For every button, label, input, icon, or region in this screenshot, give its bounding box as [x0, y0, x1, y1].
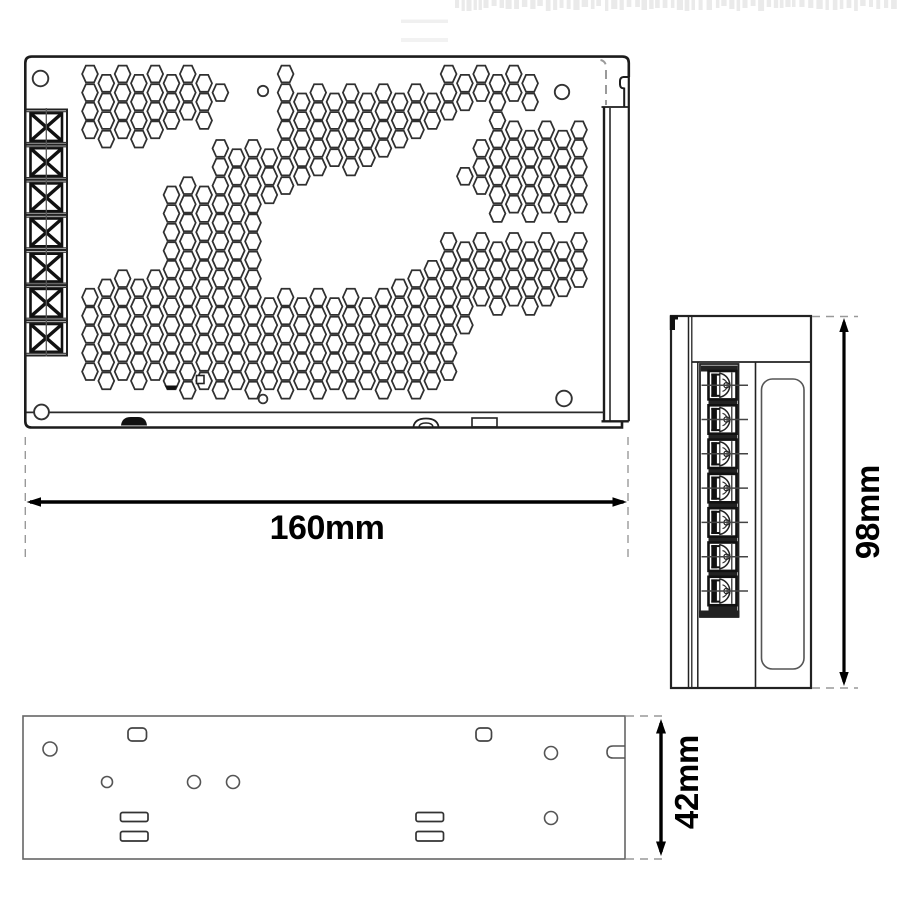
svg-text:160mm: 160mm — [270, 509, 385, 547]
svg-text:42mm: 42mm — [668, 735, 705, 829]
svg-text:98mm: 98mm — [849, 465, 886, 559]
